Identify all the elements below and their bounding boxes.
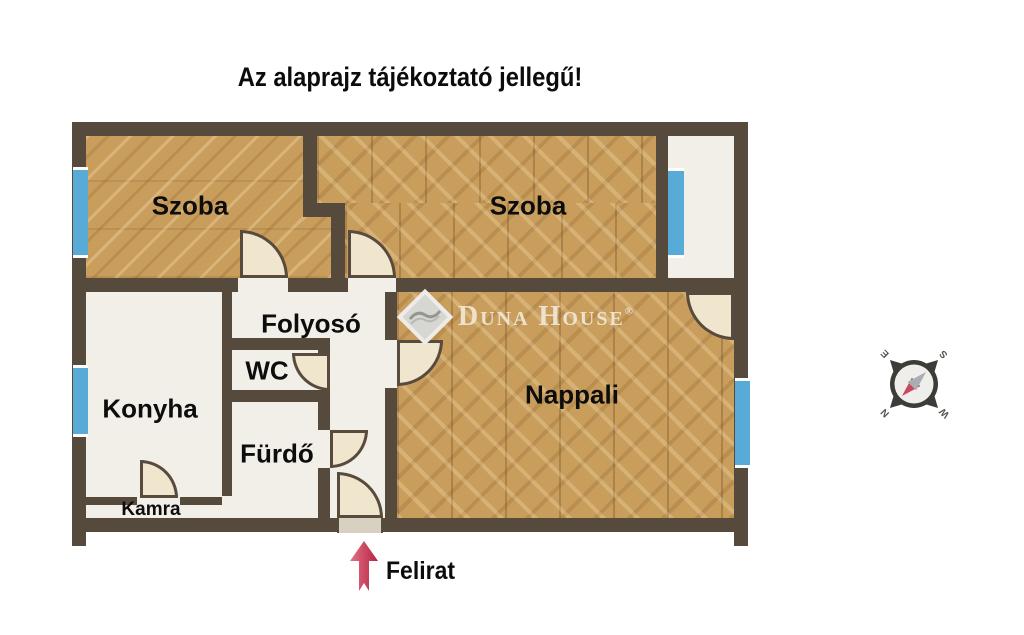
- room-label-nappali: Nappali: [525, 380, 619, 411]
- compass-west-label: W: [937, 405, 952, 420]
- floor-szoba-right-upper: [317, 136, 656, 203]
- legend-label: Felirat: [386, 557, 455, 586]
- window-szoba-left: [73, 167, 88, 258]
- room-label-wc: WC: [245, 356, 288, 387]
- wall-segment: [656, 136, 668, 282]
- entrance-threshold: [337, 517, 383, 533]
- room-label-folyoso: Folyosó: [261, 309, 361, 340]
- wall-segment: [385, 388, 397, 532]
- registered-mark: ®: [625, 306, 635, 318]
- wall-segment: [318, 402, 330, 430]
- wall-segment: [318, 338, 330, 353]
- floor-plan: Szoba Szoba Folyosó WC Konyha Fürdő Kamr…: [0, 0, 1024, 635]
- wall-segment: [222, 338, 330, 350]
- window-nappali: [735, 378, 750, 468]
- wall-segment: [318, 468, 330, 532]
- floor-plan-canvas: Az alaprajz tájékoztató jellegű!: [0, 0, 1024, 635]
- wall-segment: [303, 136, 317, 210]
- floor-szoba-left-ext: [303, 217, 331, 278]
- wall-outer-top: [72, 122, 748, 136]
- window-konyha: [73, 365, 88, 437]
- wall-segment: [222, 390, 330, 402]
- wall-outer-right: [734, 122, 748, 546]
- wall-segment: [180, 497, 222, 505]
- wall-outer-bottom-left: [72, 518, 337, 532]
- room-label-szoba-left: Szoba: [152, 191, 229, 222]
- wall-outer-bottom-right: [383, 518, 748, 532]
- wall-segment: [288, 278, 348, 292]
- wall-segment: [86, 278, 238, 292]
- compass-icon: N S E W: [868, 336, 960, 432]
- window-szoba-right: [668, 168, 684, 258]
- compass-east-label: E: [879, 347, 892, 360]
- duna-house-logo-icon: [396, 288, 454, 346]
- room-label-szoba-right: Szoba: [490, 191, 567, 222]
- legend-arrow-icon: [349, 541, 379, 591]
- watermark-brand: Duna House: [458, 301, 625, 332]
- room-label-konyha: Konyha: [102, 394, 197, 425]
- room-label-furdo: Fürdő: [240, 439, 314, 470]
- duna-house-watermark: Duna House®: [458, 301, 635, 333]
- compass-south-label: S: [938, 347, 951, 360]
- room-label-kamra: Kamra: [121, 499, 180, 521]
- compass-north-label: N: [879, 406, 892, 419]
